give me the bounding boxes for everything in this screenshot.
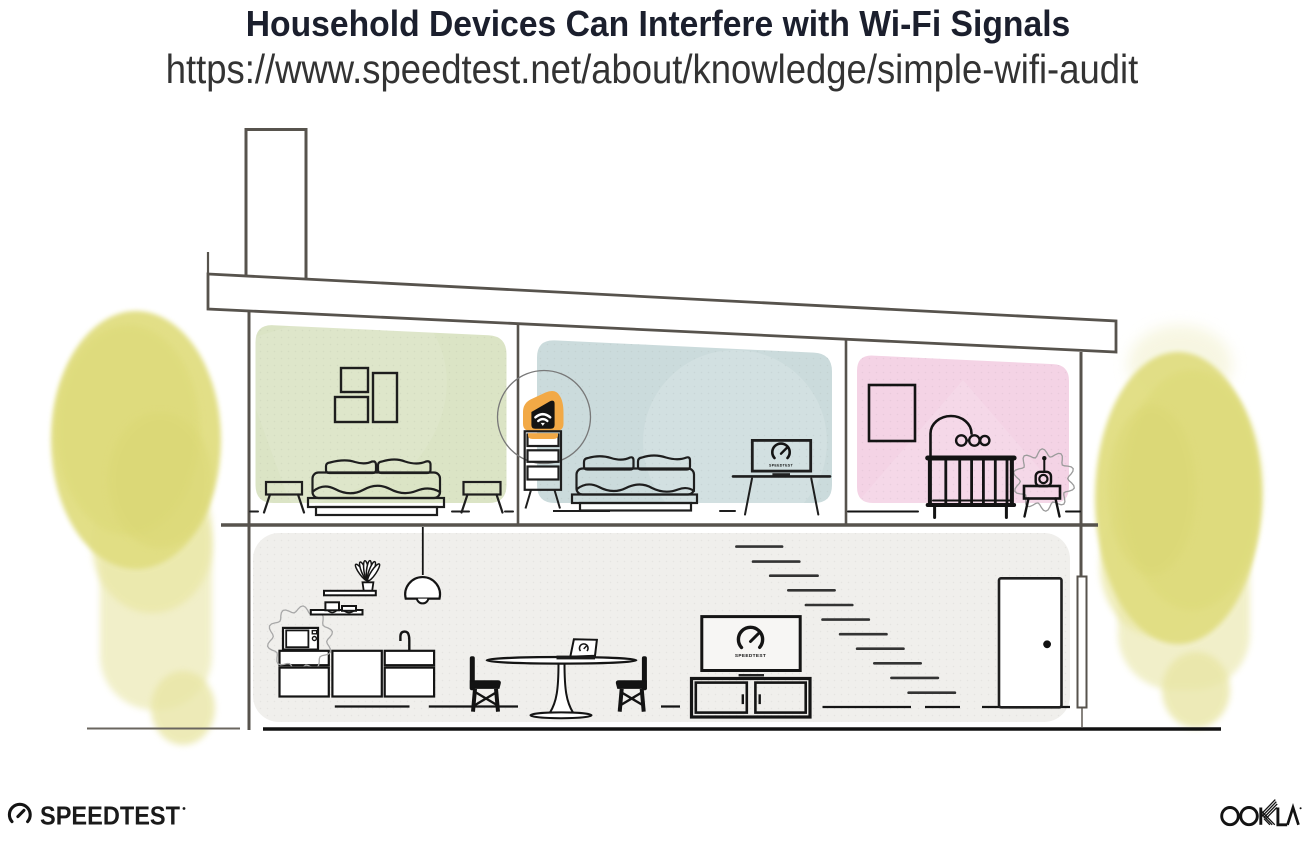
svg-text:SPEEDTEST: SPEEDTEST bbox=[735, 653, 766, 658]
svg-text:SPEEDTEST: SPEEDTEST bbox=[40, 803, 180, 831]
svg-text:SPEEDTEST: SPEEDTEST bbox=[769, 464, 793, 468]
